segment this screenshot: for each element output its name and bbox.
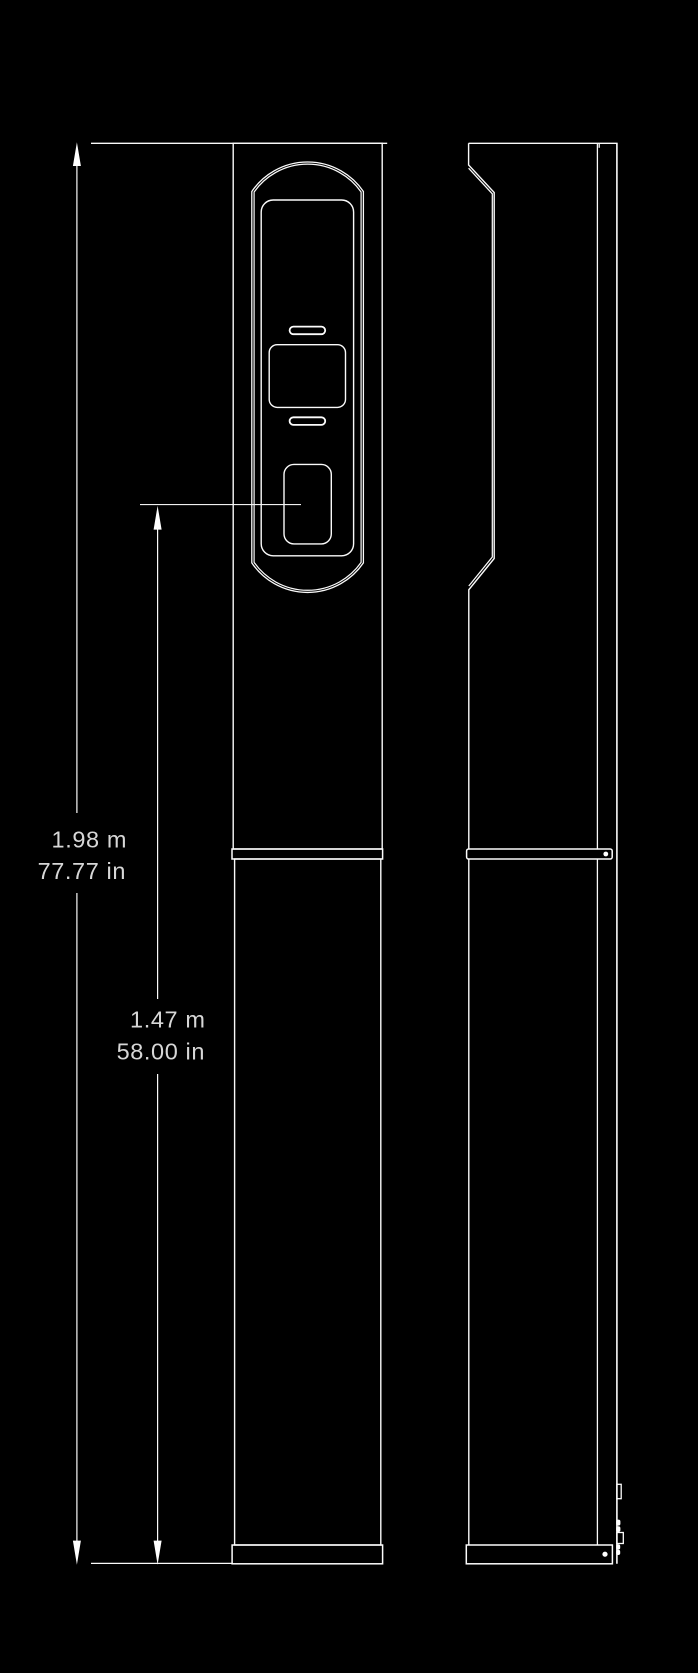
svg-text:1.47 m: 1.47 m [130,1007,205,1033]
svg-text:58.00 in: 58.00 in [117,1038,205,1064]
svg-text:1.98 m: 1.98 m [52,827,127,853]
svg-text:77.77 in: 77.77 in [38,858,126,884]
